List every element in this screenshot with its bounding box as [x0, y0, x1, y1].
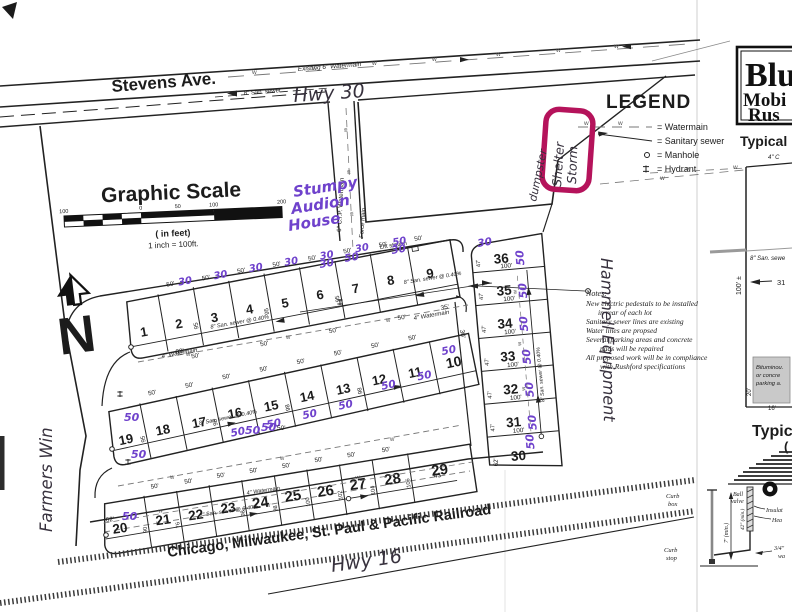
lot-row-a: 1 2 3 4 5 6 7 8 9 50' 50' 50' 50' 50' 50…: [120, 228, 463, 371]
lot-number: 7: [351, 280, 361, 296]
hand-mark-30: 30: [476, 236, 492, 250]
w-mark: w: [385, 318, 391, 324]
hand-mark-30: 30: [284, 256, 300, 269]
stevens-ave-label: Stevens Ave.: [111, 69, 217, 96]
dim-50: 50': [308, 254, 317, 262]
lot-number: 19: [117, 431, 134, 449]
lot-number: 2: [174, 316, 184, 332]
curb-stop-label: Curb: [664, 547, 678, 554]
legend-manhole-label: = Manhole: [657, 150, 699, 160]
bituminous-line: Bituminou.: [756, 365, 783, 371]
lot-row-b: 19 18 17 16 15 14 13 12 11 10 50' 50' 50…: [102, 324, 480, 467]
dim-100: 100': [504, 328, 516, 336]
typical-top-label: Typical: [740, 133, 787, 149]
north-letter: N: [54, 305, 98, 367]
dim-95: 95: [193, 321, 200, 329]
dim-50: 50': [370, 342, 379, 350]
hand-mark-50: 50: [380, 378, 397, 393]
hand-mark-50: 50: [517, 315, 531, 332]
trailer-skirt-hatch: [734, 452, 792, 480]
hand-mark-50: 50: [523, 433, 537, 450]
lot-number: 6: [315, 287, 325, 303]
hydrant-icon: [125, 459, 130, 465]
dim-50: 50': [408, 334, 417, 342]
dim-42min: 42" (min.): [739, 509, 746, 530]
lot-number: 18: [154, 421, 171, 439]
w-mark: w: [285, 335, 291, 341]
hand-mark-50: 50: [261, 421, 277, 434]
force-main-label: Force main: [359, 208, 368, 238]
san-sewer-grade-label: 8" San. sewer @ 0.40%: [210, 314, 269, 330]
hand-mark-30: 30: [248, 262, 264, 275]
hand-mark-50: 50: [301, 407, 318, 422]
hand-mark-50: 50: [513, 249, 527, 266]
scale-tick: 50: [175, 204, 181, 210]
legend-sanitary-label: = Sanitary sewer: [657, 136, 724, 146]
dim-100: 100': [500, 262, 512, 270]
scale-ratio: 1 inch = 100ft.: [148, 239, 199, 250]
dim-50: 50': [191, 352, 200, 360]
dim-50: 50': [147, 389, 156, 397]
legend-watermain-label: = Watermain: [657, 122, 708, 132]
dim-50: 50': [333, 349, 342, 357]
w-mark: w: [617, 120, 623, 127]
bituminous-line: or concre: [756, 373, 781, 379]
hydrant-icon: [117, 391, 122, 397]
existing-watermain-label: Existing 6" Watermain: [298, 61, 362, 73]
lot-number: 1: [139, 324, 149, 340]
w-mark: w: [685, 166, 691, 173]
typical-lot-detail: w w 4" C 8" San. sewe 100' ± 31 Bitumino…: [650, 155, 792, 412]
graphic-scale: Graphic Scale 100 0 50 100 200 ( in feet…: [58, 176, 288, 254]
dim-50: 50': [259, 365, 268, 373]
w-mark: w: [613, 43, 619, 50]
dim-50: 50': [150, 483, 159, 491]
dim-50: 50': [237, 267, 246, 275]
title-panel: Blu Mobi Rus Typical: [737, 47, 792, 149]
dim-50: 50': [277, 425, 285, 432]
typical-service-detail: Typic ( Curb box Curb stop 7' (min.) 42"…: [664, 423, 792, 566]
dim-95: 95: [335, 294, 342, 302]
lot-number: 5: [280, 295, 290, 311]
w-mark: w: [169, 475, 175, 481]
dim-50: 50': [216, 472, 225, 480]
dim-50: 50': [272, 261, 281, 269]
lot-number: 28: [383, 470, 402, 489]
scale-tick: 200: [277, 199, 286, 205]
panel-title-line3: Rus: [748, 105, 780, 126]
copper-4-label: 4" C: [768, 155, 780, 161]
dim-50: 50': [381, 446, 390, 454]
w-mark: w: [311, 65, 317, 72]
hand-mark-30: 30: [177, 275, 193, 288]
lot-number: 15: [263, 397, 280, 415]
dim-100: 100': [510, 394, 522, 402]
dim-50: 50': [282, 462, 291, 470]
w-mark: w: [431, 56, 437, 63]
san-sewer-grade-label: 8" San. sewer @ 0.40%: [536, 347, 547, 403]
ball-valve-label: Ball: [733, 492, 743, 498]
w-mark: w: [251, 69, 257, 76]
dim-47: 47': [476, 259, 483, 267]
dim-47: 47': [484, 358, 491, 366]
w-mark: w: [583, 120, 589, 127]
farmers-win-note: Farmers Win: [37, 427, 56, 532]
graphic-scale-title: Graphic Scale: [101, 178, 242, 207]
plat-map-drawing: Stevens Ave. Existing 6" Watermain 8" Sa…: [0, 0, 792, 612]
lot31-callout: 31: [777, 278, 785, 287]
watermain4-label: 4" Watermain: [413, 310, 450, 322]
lot-number: 25: [283, 487, 302, 506]
bituminous-line: parking a.: [755, 381, 781, 387]
dim-100: 100': [507, 361, 519, 369]
hand-mark-50: 50: [343, 251, 359, 265]
w-mark: w: [348, 211, 355, 218]
dim-100-plusminus: 100' ±: [736, 276, 743, 295]
dim-50: 50': [184, 478, 193, 486]
ball-valve-label: valve: [731, 499, 744, 505]
dim-50: 50': [378, 241, 387, 249]
panel-title-line1: Blu: [745, 57, 792, 94]
site-plan-scan: Stevens Ave. Existing 6" Watermain 8" Sa…: [0, 0, 792, 612]
lot-number: 8: [386, 272, 396, 288]
dim-50: 50': [185, 381, 194, 389]
scale-tick: 100: [209, 202, 218, 208]
w-mark: w: [389, 437, 395, 443]
curb-box-label: Curb: [666, 493, 680, 500]
dim-62: 62': [105, 516, 114, 524]
dim-50: 50': [201, 274, 210, 282]
dim-47: 47': [479, 292, 486, 300]
w-mark: w: [495, 51, 501, 58]
dim-7min: 7' (min.): [723, 523, 730, 543]
dim-50: 50': [222, 373, 231, 381]
hydrant-icon: [643, 166, 649, 173]
dim-50: 50': [314, 456, 323, 464]
dim-50: 50': [166, 280, 175, 288]
stevens-ave: Stevens Ave. Existing 6" Watermain 8" Sa…: [0, 40, 700, 127]
dim-47: 47': [482, 325, 489, 333]
dim-43: 43': [433, 472, 442, 480]
dim-50: 50': [414, 235, 423, 243]
hand-mark-50: 50: [245, 424, 261, 437]
shelter-word: Shelter: [549, 141, 567, 188]
scale-tick: 0: [139, 206, 142, 212]
dim-50: 50': [328, 327, 337, 335]
dim-50: 50': [347, 451, 356, 459]
heat-label: Hea: [771, 518, 782, 524]
scale-tick: 100: [59, 209, 68, 215]
w-mark: w: [732, 164, 738, 171]
hand-mark-50: 50: [122, 510, 138, 523]
w-mark: w: [371, 60, 377, 67]
dim-50: 50': [249, 467, 258, 475]
dim-62: 62': [494, 458, 500, 466]
curb-box-label: box: [668, 501, 678, 508]
insulation-label: Insulat: [765, 508, 783, 514]
scale-units: ( in feet): [155, 228, 190, 240]
dumpster-note: dumpster: [526, 147, 550, 203]
dim-35: 35': [440, 304, 450, 312]
lot-number: 26: [316, 482, 335, 501]
dim-47: 47': [487, 391, 494, 399]
dim-47: 47': [490, 424, 497, 432]
w-mark: w: [555, 47, 561, 54]
dim-50: 50': [260, 340, 269, 348]
curb-stop-label: stop: [666, 555, 678, 562]
hammell-equipment-note: Hammell Equipment: [597, 258, 619, 423]
lot-number: 9: [425, 265, 435, 281]
hand-mark-50: 50: [124, 411, 140, 424]
dim-50: 50': [397, 314, 406, 322]
north-arrow: N: [51, 273, 99, 367]
lot-number: 14: [298, 387, 316, 405]
hand-mark-50: 50: [131, 448, 147, 461]
w-mark: w: [659, 175, 665, 182]
dim-100: 100': [513, 427, 525, 435]
dim-20: 20': [747, 388, 753, 396]
typical-bottom-label: Typic: [752, 423, 792, 440]
hand-mark-30: 30: [213, 269, 229, 282]
hand-mark-30: 30: [318, 257, 334, 271]
san8-detail-label: 8" San. sewe: [750, 256, 786, 262]
hand-mark-50: 50: [337, 398, 354, 413]
hand-mark-30: 30: [390, 243, 406, 257]
hwy16-handwriting: Hwy 16: [330, 545, 404, 577]
w-mark: w: [517, 341, 524, 348]
legend-hydrant-label: = Hydrant: [657, 164, 697, 174]
legend-title: LEGEND: [606, 92, 691, 113]
w-mark: w: [279, 456, 285, 462]
hand-mark-50: 50: [520, 348, 534, 365]
hand-mark-50: 50: [525, 414, 539, 431]
lot-column: 36 35 34 33 32 31 30 100' 100' 100' 100'…: [470, 234, 562, 472]
dim-50: 50': [296, 358, 305, 366]
stumpy-audion-house-note: Stumpy Audion House: [287, 173, 360, 235]
dim-100: 100': [503, 295, 515, 303]
lot-number: 4: [245, 301, 255, 317]
lot-number: 21: [155, 511, 173, 528]
service-size-label: wa: [778, 554, 785, 560]
legend: LEGEND w w = Watermain = Sanitary sewer …: [578, 92, 744, 184]
notes-line: Water lines are propsed: [586, 326, 657, 335]
service-size-label: 3/4": [773, 545, 785, 552]
lot-number: 13: [335, 380, 352, 398]
